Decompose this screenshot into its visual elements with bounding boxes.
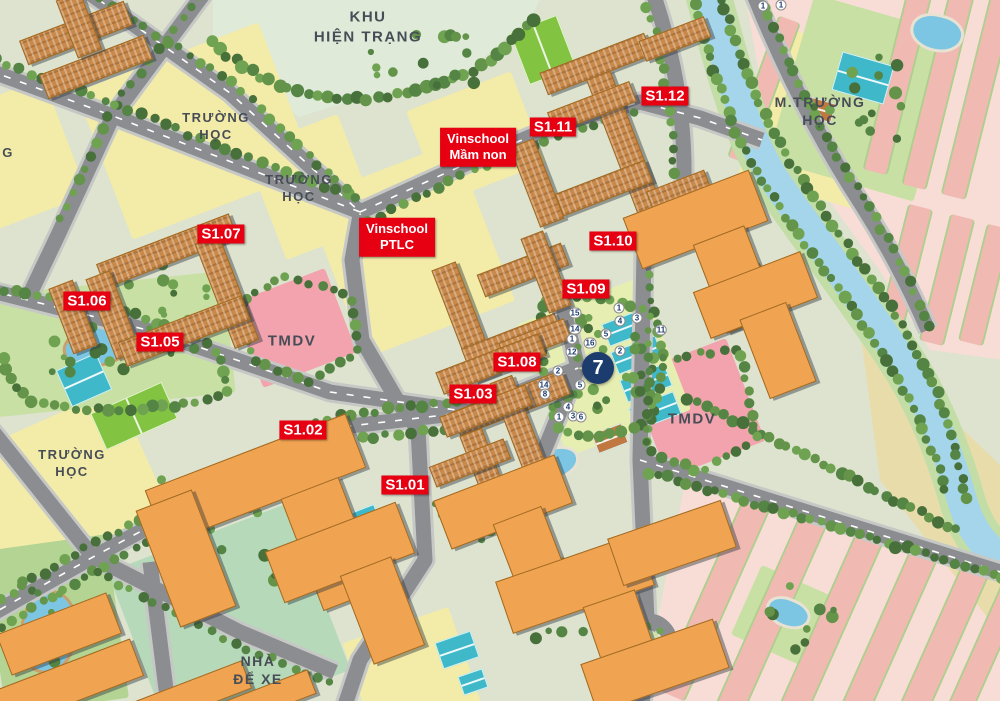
amenity-marker: 2 — [553, 366, 564, 377]
amenity-marker: 1 — [614, 303, 625, 314]
amenity-marker: 5 — [575, 380, 586, 391]
amenity-marker: 15 — [569, 308, 582, 319]
amenity-marker: 1 — [758, 1, 769, 12]
amenity-marker: 1 — [554, 412, 565, 423]
amenity-marker: 4 — [615, 316, 626, 327]
amenity-marker: 2 — [615, 346, 626, 357]
amenity-marker: 5 — [601, 329, 612, 340]
amenity-marker: 1 — [776, 0, 787, 11]
amenity-marker: 11 — [655, 325, 667, 336]
main-marker[interactable]: 7 — [582, 352, 614, 384]
amenity-marker: 8 — [540, 389, 551, 400]
amenity-marker: 3 — [632, 313, 643, 324]
amenity-marker: 6 — [576, 412, 587, 423]
master-plan-map: KHUHIỆN TRẠNGTRƯỜNGHỌCTRƯỜNGHỌCTRƯỜNGHỌC… — [0, 0, 1000, 701]
amenity-marker: 1 — [567, 334, 578, 345]
amenity-marker: 16 — [584, 338, 597, 349]
amenity-marker: 12 — [566, 347, 579, 358]
markers-layer: 7111514314151612211214584136 — [0, 0, 1000, 701]
